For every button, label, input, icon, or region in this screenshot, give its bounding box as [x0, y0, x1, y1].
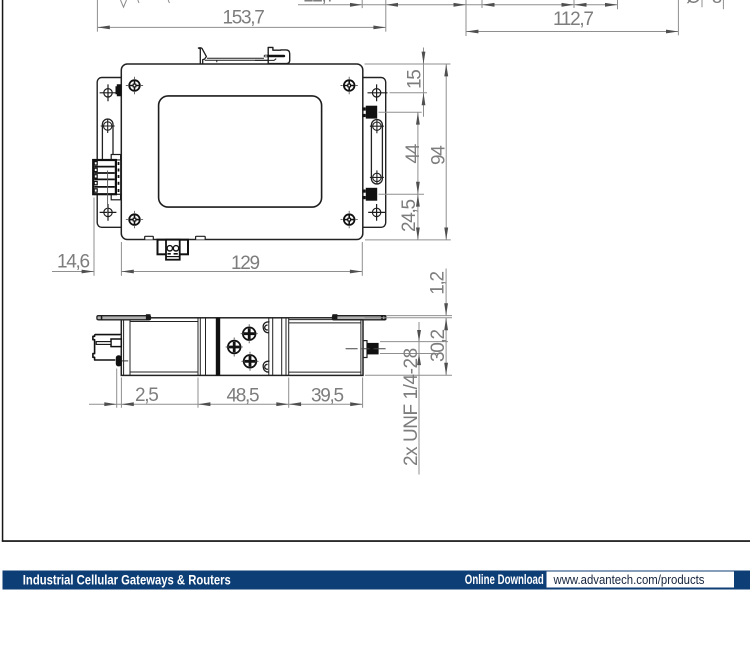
svg-text:30,2: 30,2	[428, 329, 449, 362]
svg-text:15: 15	[405, 70, 426, 89]
svg-text:112,7: 112,7	[553, 9, 593, 30]
svg-text:48,5: 48,5	[227, 386, 260, 407]
svg-text:39,5: 39,5	[311, 386, 344, 407]
svg-text:2x UNF 1/4-28: 2x UNF 1/4-28	[401, 348, 422, 466]
svg-text:24,5: 24,5	[399, 199, 420, 232]
svg-text:14,6: 14,6	[57, 251, 90, 272]
svg-text:12,7: 12,7	[303, 0, 336, 6]
svg-text:153,7: 153,7	[223, 7, 265, 28]
svg-text:2,5: 2,5	[135, 385, 158, 406]
svg-text:Industrial Cellular Gateways &: Industrial Cellular Gateways & Routers	[23, 573, 231, 588]
svg-text:1,2: 1,2	[428, 272, 449, 295]
svg-text:www.advantech.com/products: www.advantech.com/products	[553, 572, 705, 587]
svg-text:44: 44	[403, 143, 424, 163]
svg-text:94: 94	[429, 145, 450, 165]
svg-text:129: 129	[231, 253, 260, 274]
svg-text:Ø8: Ø8	[686, 0, 733, 8]
svg-text:Online Download: Online Download	[465, 572, 544, 587]
